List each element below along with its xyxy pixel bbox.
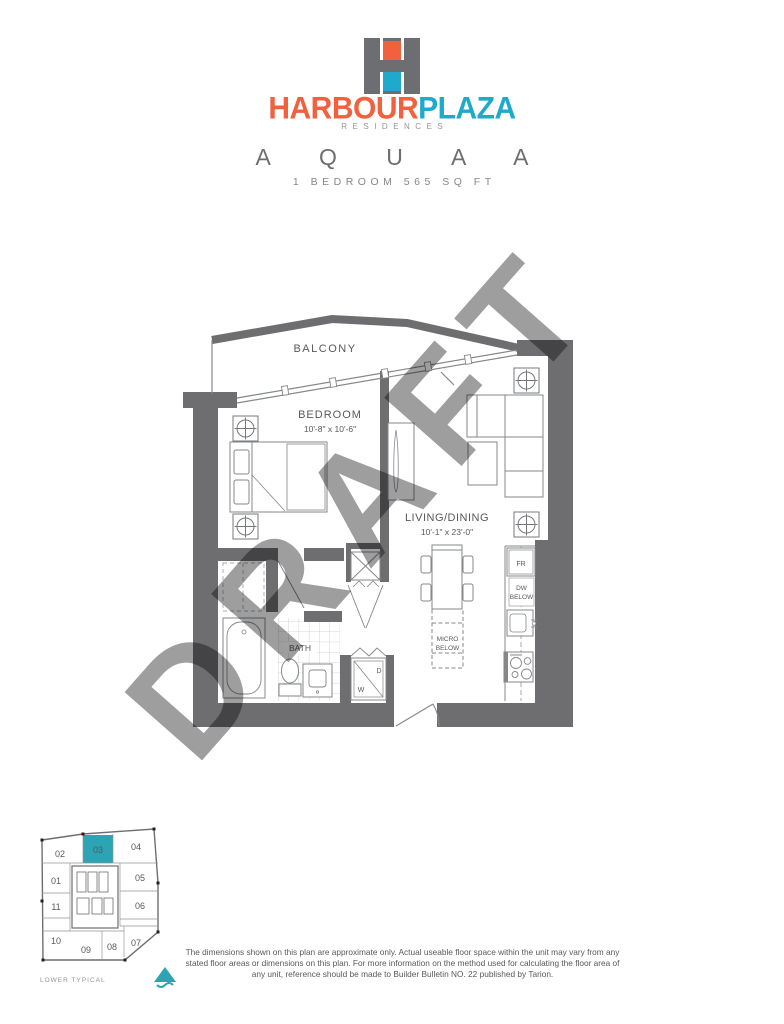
- fridge-label: FR: [516, 561, 525, 568]
- linen-closet: [348, 552, 383, 628]
- wardrobe-mirror: [388, 423, 414, 500]
- brand-harbour: HARBOUR: [268, 91, 418, 126]
- living-dims: 10'-1" x 23'-0": [421, 527, 473, 537]
- unit-10-label: 10: [51, 936, 61, 946]
- dw-label-1: DW: [516, 585, 528, 592]
- unit-05-label: 05: [135, 873, 145, 883]
- dryer-label: D: [376, 668, 381, 675]
- brand-residences: RESIDENCES: [336, 122, 449, 131]
- ceiling-light-icon: [514, 368, 539, 393]
- window-wall: [212, 340, 517, 403]
- floorplan: BALCONY BEDROOM 10'-8" x 10'-6" LIVING/D…: [175, 240, 605, 750]
- coffee-table: [468, 442, 497, 485]
- micro-label-1: MICRO: [437, 636, 459, 643]
- unit-11-label: 11: [51, 902, 60, 912]
- wall-left: [193, 408, 218, 727]
- unit-09-label: 09: [81, 945, 91, 955]
- logo-teal-block: [383, 72, 401, 91]
- wall-wd-right: [386, 655, 394, 703]
- disclaimer: The dimensions shown on this plan are ap…: [180, 947, 625, 979]
- dishwasher: [509, 578, 534, 606]
- toilet: [279, 659, 301, 696]
- wall-closet-top: [346, 543, 389, 549]
- wall-bath-c: [304, 548, 344, 561]
- wall-bath-a: [218, 548, 266, 561]
- bedroom-dims: 10'-8" x 10'-6": [304, 424, 356, 434]
- logo-orange-block: [383, 41, 401, 60]
- keyplan-caption: LOWER TYPICAL: [40, 977, 106, 984]
- wall-left-stub: [183, 392, 237, 408]
- bath-label: BATH: [289, 643, 311, 653]
- north-compass-icon: [148, 962, 182, 992]
- dw-label-2: BELOW: [510, 594, 534, 601]
- bed: [230, 442, 327, 512]
- wall-bath-d: [304, 611, 342, 622]
- logo-mark: [364, 38, 420, 94]
- unit-02-label: 02: [55, 849, 65, 859]
- wall-wd-left: [340, 655, 351, 703]
- keyplan: 02 03 04 05 06 07 01 11 10 09 08: [36, 826, 164, 968]
- micro-label-2: BELOW: [436, 645, 460, 652]
- page: { "logo": { "brand_primary": "HARBOUR", …: [0, 0, 784, 1024]
- unit-06-label: 06: [135, 901, 145, 911]
- bath-door: [278, 561, 304, 608]
- bedroom-closet: [223, 563, 264, 611]
- keyplan-svg: 02 03 04 05 06 07 01 11 10 09 08: [36, 826, 164, 968]
- ceiling-light-icon: [514, 512, 539, 537]
- entry-door: [396, 704, 439, 726]
- bathroom-sink: [303, 664, 332, 697]
- kitchen-sink: [507, 610, 537, 636]
- wall-bottom-left: [218, 703, 394, 727]
- plan-title: A Q U A A: [242, 144, 541, 171]
- wall-bath-b: [266, 548, 278, 612]
- wall-closet-left: [346, 546, 351, 582]
- unit-08-label: 08: [107, 942, 117, 952]
- unit-07-label: 07: [131, 938, 141, 948]
- plan-spec: 1 BEDROOM 565 SQ FT: [288, 176, 495, 188]
- cooktop: [504, 652, 533, 682]
- bedroom-label: BEDROOM: [298, 409, 362, 421]
- bathtub: [223, 618, 265, 698]
- wall-balcony-top: [212, 319, 519, 348]
- wall-kitchen-furring: [535, 540, 548, 703]
- brand-plaza: PLAZA: [418, 91, 516, 126]
- ceiling-light-icon: [233, 514, 258, 539]
- wall-right: [548, 343, 573, 727]
- floorplan-svg: BALCONY BEDROOM 10'-8" x 10'-6" LIVING/D…: [175, 240, 605, 750]
- unit-03-label: 03: [93, 845, 103, 855]
- wall-top-right-cap: [517, 340, 573, 356]
- living-label: LIVING/DINING: [405, 512, 489, 524]
- unit-01-label: 01: [51, 876, 61, 886]
- balcony-label: BALCONY: [293, 343, 356, 355]
- dining-table: [421, 545, 473, 609]
- unit-04-label: 04: [131, 842, 141, 852]
- balcony-door-swing: [441, 372, 454, 385]
- washer-label: W: [358, 687, 365, 694]
- logo-slit: [401, 38, 404, 60]
- ceiling-light-icon: [233, 416, 258, 441]
